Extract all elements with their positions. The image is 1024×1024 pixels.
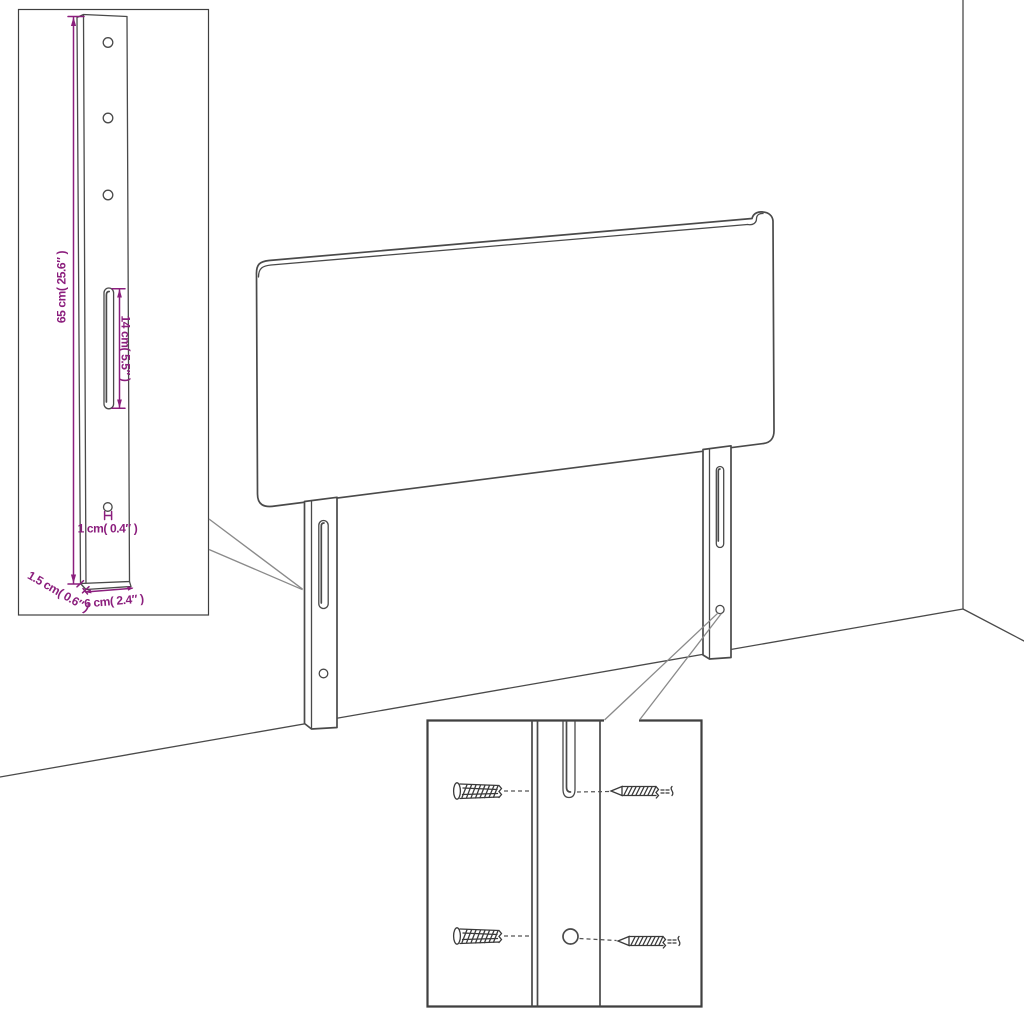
assembly-diagram: 65 cm( 25.6″ ) 14 cm( 5.5″ ) 1 cm( 0.4″ …: [0, 0, 1024, 1024]
headboard-left-leg: [305, 497, 338, 729]
headboard-outline: [256, 212, 774, 507]
bracket-callout-leader-bottom: [209, 550, 303, 590]
hardware-detail-inset: [427, 720, 702, 1007]
hardware-detail-box-fill: [427, 720, 702, 1007]
bracket-hole-3: [103, 190, 113, 200]
callout-leader-lines: [209, 519, 721, 720]
slot-dimension-label: 14 cm( 5.5″ ): [119, 316, 133, 382]
diagram-canvas: 65 cm( 25.6″ ) 14 cm( 5.5″ ) 1 cm( 0.4″ …: [0, 0, 1024, 1024]
height-dimension-label: 65 cm( 25.6″ ): [55, 251, 69, 324]
leg-closeup-hole: [563, 929, 578, 944]
bracket-callout-leader-top: [209, 519, 303, 589]
left-leg-slot: [319, 521, 328, 609]
headboard-panel: [256, 212, 774, 507]
hardware-callout-leader-right: [640, 614, 722, 720]
bracket-slot: [104, 288, 114, 409]
headboard-right-leg: [703, 446, 731, 659]
right-leg-hole: [716, 605, 724, 613]
left-leg-hole: [319, 669, 328, 678]
right-leg-slot: [716, 467, 723, 548]
hardware-callout-leader-left: [605, 613, 719, 720]
bracket-hole-2: [103, 113, 113, 123]
bracket-hole-1: [103, 38, 113, 48]
hole-dimension-label: 1 cm( 0.4″ ): [78, 522, 138, 536]
bracket-detail-inset: 65 cm( 25.6″ ) 14 cm( 5.5″ ) 1 cm( 0.4″ …: [19, 10, 209, 616]
bracket-bottom-hole: [104, 503, 113, 512]
floor-wall-edge-right: [963, 609, 1024, 641]
